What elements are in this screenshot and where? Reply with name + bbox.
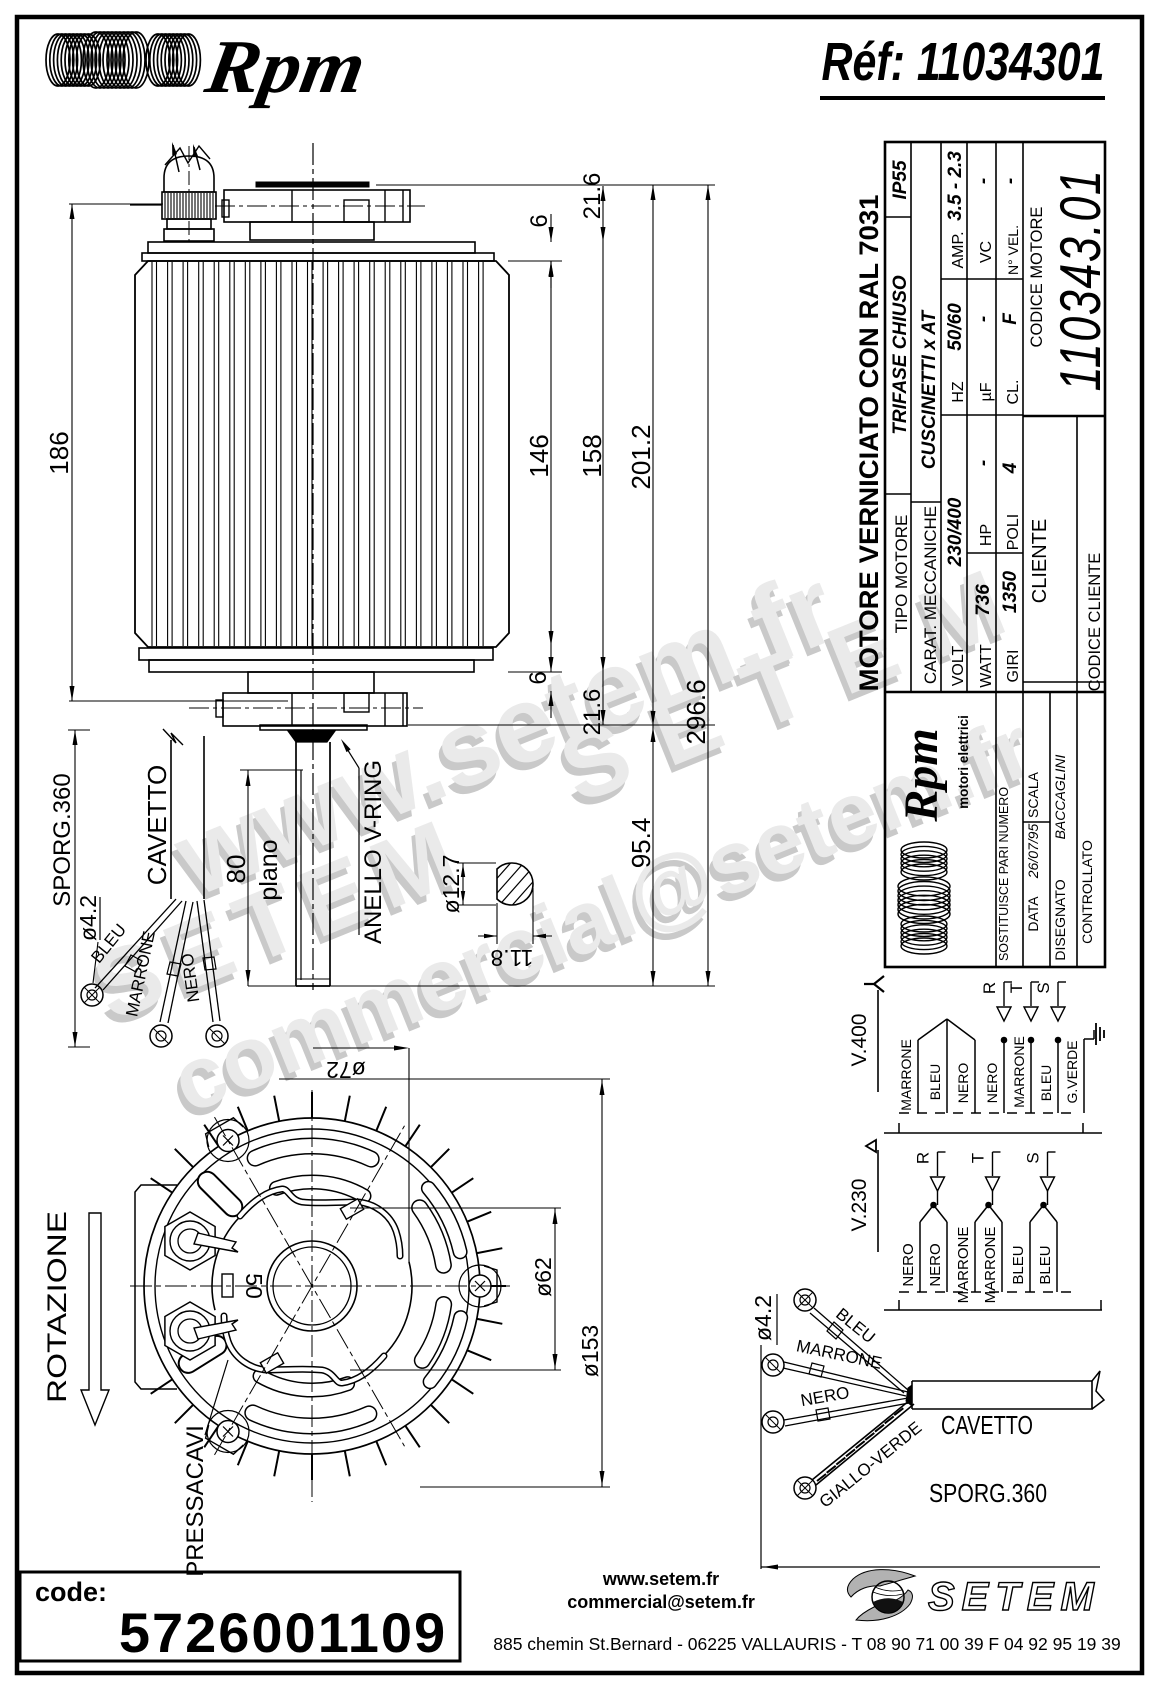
svg-text:80: 80	[221, 855, 251, 884]
svg-text:WATT: WATT	[978, 644, 995, 688]
svg-text:885 chemin St.Bernard - 0622: 885 chemin St.Bernard - 06225 VALLAURIS …	[493, 1634, 1121, 1654]
svg-text:www.setem.fr: www.setem.fr	[602, 1569, 719, 1589]
svg-text:N° VEL.: N° VEL.	[1005, 225, 1021, 275]
svg-text:G.VERDE: G.VERDE	[1064, 1040, 1080, 1103]
svg-text:6: 6	[525, 671, 552, 684]
svg-text:BLEU: BLEU	[1010, 1245, 1027, 1284]
svg-text:S: S	[1034, 982, 1053, 993]
svg-text:MARRONE: MARRONE	[1011, 1036, 1027, 1108]
svg-text:201.2: 201.2	[626, 424, 656, 489]
svg-text:CARAT. MECCANICHE: CARAT. MECCANICHE	[921, 506, 940, 684]
svg-text:SETEM: SETEM	[928, 1575, 1101, 1619]
svg-text:CLIENTE: CLIENTE	[1029, 519, 1051, 603]
svg-text:DISEGNATO: DISEGNATO	[1052, 879, 1068, 960]
svg-text:Réf: 11034301: Réf: 11034301	[822, 32, 1105, 92]
svg-text:NERO: NERO	[927, 1243, 944, 1286]
svg-text:CONTROLLATO: CONTROLLATO	[1079, 840, 1095, 944]
svg-text:ø4.2: ø4.2	[75, 895, 101, 941]
svg-text:110343.01: 110343.01	[1048, 169, 1113, 392]
svg-text:95.4: 95.4	[626, 818, 656, 869]
svg-text:-: -	[1000, 178, 1021, 184]
svg-text:CODICE MOTORE: CODICE MOTORE	[1028, 207, 1046, 348]
svg-text:Rpm: Rpm	[199, 25, 372, 109]
svg-text:Rpm: Rpm	[895, 728, 948, 822]
svg-text:ø62: ø62	[530, 1257, 556, 1297]
svg-text:3.5 - 2.3: 3.5 - 2.3	[945, 151, 966, 221]
svg-text:146: 146	[524, 434, 554, 477]
svg-text:VOLT: VOLT	[950, 645, 967, 686]
svg-text:ROTAZIONE: ROTAZIONE	[42, 1211, 72, 1403]
svg-text:50/60: 50/60	[945, 303, 966, 351]
svg-text:T: T	[969, 1153, 988, 1163]
svg-text:V.400: V.400	[848, 1014, 871, 1067]
svg-text:code:: code:	[35, 1577, 107, 1607]
svg-text:NERO: NERO	[955, 1063, 971, 1104]
svg-text:TIPO MOTORE: TIPO MOTORE	[892, 515, 911, 634]
svg-text:MOTORE VERNICIATO CON RAL 7031: MOTORE VERNICIATO CON RAL 7031	[854, 195, 884, 692]
svg-text:ø153: ø153	[577, 1325, 603, 1377]
svg-text:V.230: V.230	[848, 1179, 871, 1232]
svg-text:HZ: HZ	[950, 381, 967, 403]
svg-text:ø4.2: ø4.2	[750, 1295, 776, 1341]
svg-text:SOSTITUISCE PARI NUMERO: SOSTITUISCE PARI NUMERO	[997, 787, 1011, 961]
svg-text:158: 158	[577, 434, 607, 477]
svg-text:R: R	[980, 982, 999, 994]
svg-text:BLEU: BLEU	[927, 1064, 943, 1101]
svg-text:ANELLO V-RING: ANELLO V-RING	[360, 760, 387, 944]
svg-text:NERO: NERO	[984, 1063, 1000, 1104]
svg-text:PRESSACAVI: PRESSACAVI	[182, 1425, 209, 1577]
svg-text:GIRI: GIRI	[1005, 650, 1022, 683]
svg-text:µF: µF	[978, 382, 995, 401]
svg-text:4: 4	[1000, 462, 1021, 474]
svg-text:NERO: NERO	[900, 1243, 917, 1286]
svg-text:HP: HP	[978, 524, 995, 546]
svg-text:21.6: 21.6	[579, 689, 606, 736]
svg-text:-: -	[973, 178, 994, 184]
svg-text:T: T	[1007, 983, 1026, 993]
svg-text:CL.: CL.	[1005, 380, 1022, 405]
svg-text:MARRONE: MARRONE	[898, 1039, 914, 1111]
svg-text:SPORG.360: SPORG.360	[929, 1478, 1047, 1508]
svg-text:CUSCINETTI x AT: CUSCINETTI x AT	[919, 309, 940, 469]
svg-text:21.6: 21.6	[579, 173, 606, 220]
svg-text:S: S	[1024, 1152, 1043, 1163]
svg-text:motori elettrici: motori elettrici	[956, 715, 971, 809]
svg-text:296.6: 296.6	[681, 679, 711, 744]
svg-text:VC: VC	[978, 241, 995, 263]
svg-text:BACCAGLINI: BACCAGLINI	[1052, 754, 1068, 839]
svg-text:CAVETTO: CAVETTO	[941, 1410, 1033, 1440]
svg-text:BLEU: BLEU	[1038, 1065, 1054, 1102]
svg-text:SPORG.360: SPORG.360	[49, 773, 76, 906]
svg-text:plano: plano	[255, 839, 283, 900]
svg-text:230/400: 230/400	[945, 497, 966, 567]
svg-text:1350: 1350	[1000, 570, 1021, 613]
svg-text:BLEU: BLEU	[1037, 1245, 1054, 1284]
svg-text:CODICE CLIENTE: CODICE CLIENTE	[1086, 553, 1104, 691]
svg-text:CAVETTO: CAVETTO	[142, 765, 172, 885]
svg-text:-: -	[973, 460, 994, 466]
svg-text:26/07/95: 26/07/95	[1025, 824, 1041, 880]
svg-text:736: 736	[973, 584, 994, 616]
svg-text:TRIFASE CHIUSO: TRIFASE CHIUSO	[890, 275, 911, 435]
svg-text:SCALA: SCALA	[1025, 771, 1041, 818]
svg-text:commercial@setem.fr: commercial@setem.fr	[567, 1592, 755, 1612]
svg-text:5726001109: 5726001109	[119, 1601, 447, 1664]
svg-text:186: 186	[44, 431, 74, 474]
svg-text:R: R	[914, 1152, 933, 1164]
svg-text:POLI: POLI	[1005, 514, 1022, 550]
svg-text:11.8: 11.8	[490, 945, 533, 971]
svg-text:ø12.7: ø12.7	[438, 855, 464, 914]
svg-text:IP55: IP55	[890, 160, 911, 200]
svg-text:F: F	[1000, 312, 1021, 325]
svg-text:DATA: DATA	[1025, 896, 1041, 932]
svg-text:-: -	[973, 316, 994, 322]
svg-text:AMP.: AMP.	[950, 231, 967, 268]
svg-text:6: 6	[526, 214, 553, 227]
